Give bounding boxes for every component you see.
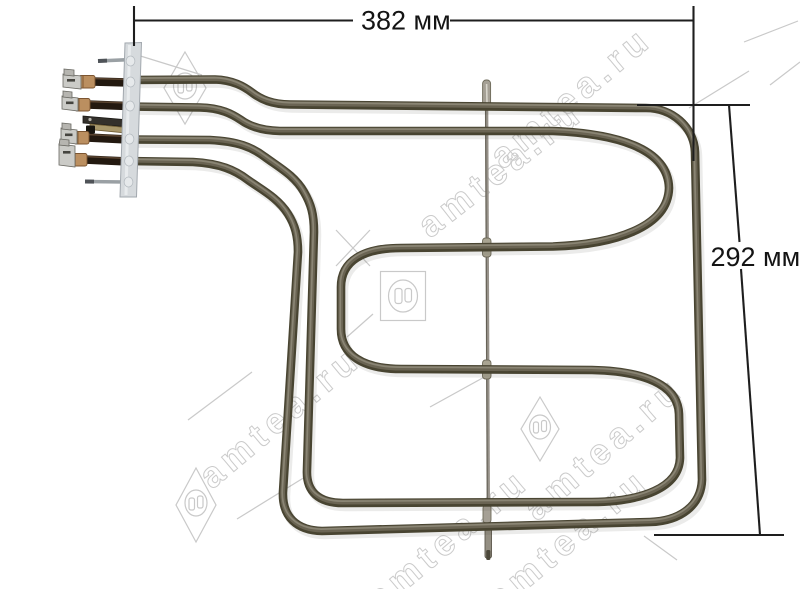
svg-text:292 мм: 292 мм — [711, 242, 800, 272]
svg-text:382 мм: 382 мм — [361, 6, 451, 36]
